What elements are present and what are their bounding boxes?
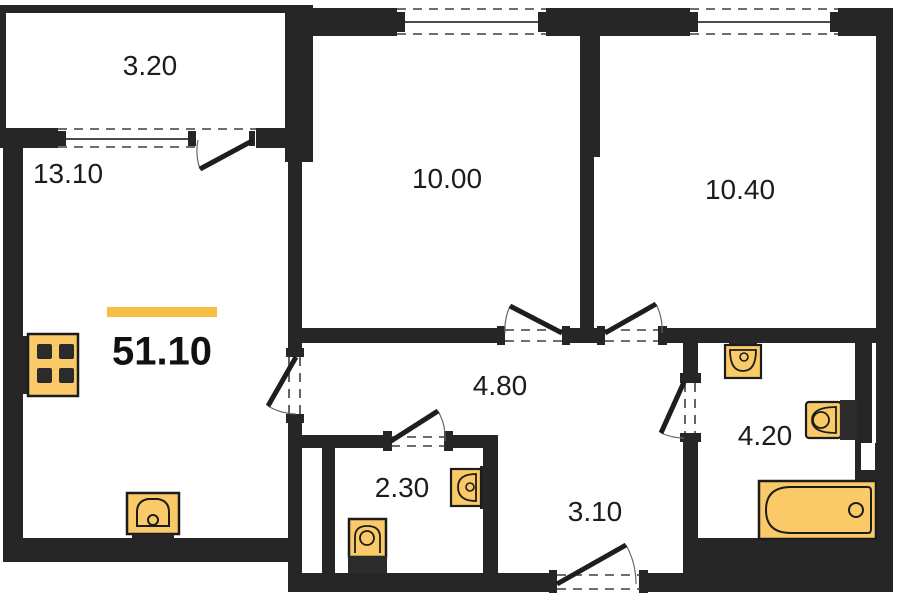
bathroom-door <box>661 382 684 438</box>
bathroom-toilet-icon <box>806 400 857 440</box>
duct-shaft <box>861 443 875 470</box>
bathtub-icon <box>759 481 876 539</box>
room-area-label-bedroom-1: 10.00 <box>412 163 482 195</box>
wc-sink-icon <box>451 466 488 509</box>
room-area-label-bedroom-2: 10.40 <box>705 174 775 206</box>
entrance-door <box>557 545 636 584</box>
room-area-label-kitchen-living: 13.10 <box>33 158 103 190</box>
room-area-label-corridor: 4.80 <box>473 370 528 402</box>
windows <box>66 22 830 139</box>
total-area-accent-bar <box>107 307 217 317</box>
balcony-door <box>197 140 254 169</box>
bedroom-1-door <box>505 306 562 333</box>
living-room-door <box>268 357 296 414</box>
bathroom-sink-icon <box>725 338 761 378</box>
room-area-label-entrance-hall: 3.10 <box>568 496 623 528</box>
wc-door <box>391 411 445 441</box>
room-area-label-balcony: 3.20 <box>123 50 178 82</box>
stove-icon <box>22 334 78 396</box>
floor-plan: 3.20 13.10 10.00 10.40 4.80 2.30 3.10 4.… <box>0 0 901 600</box>
kitchen-sink-icon <box>127 493 179 542</box>
bedroom-2-door <box>605 304 662 333</box>
floor-plan-drawing <box>0 0 901 600</box>
room-area-label-bathroom: 4.20 <box>738 420 793 452</box>
wc-toilet-icon <box>348 519 387 573</box>
total-area-label: 51.10 <box>112 330 212 375</box>
room-area-label-wc: 2.30 <box>375 472 430 504</box>
